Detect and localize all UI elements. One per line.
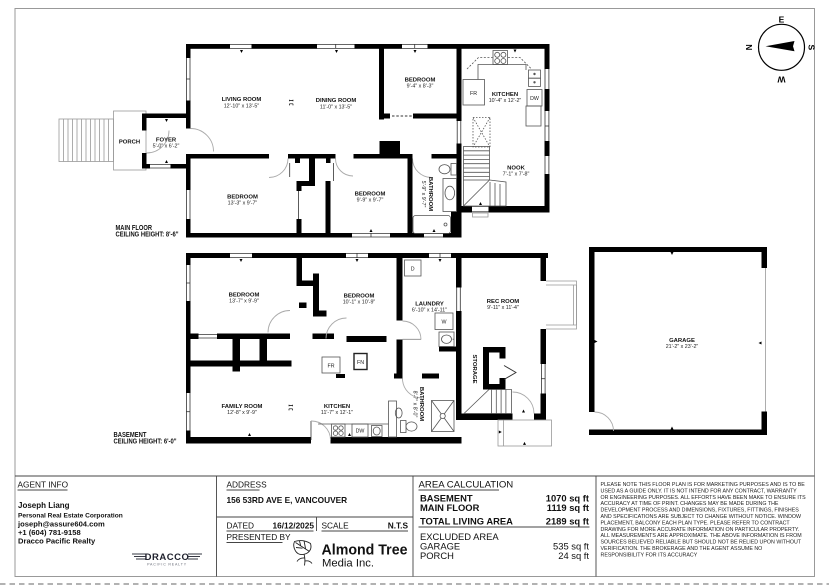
- svg-text:PLACEMENT, BALCONY EACH PLAN T: PLACEMENT, BALCONY EACH PLAN TYPE. PLEAS…: [601, 520, 791, 526]
- svg-text:12'-10" x 13'-5": 12'-10" x 13'-5": [224, 104, 260, 110]
- svg-text:9'-11" x 11'-4": 9'-11" x 11'-4": [487, 305, 519, 311]
- svg-text:LIVING ROOM: LIVING ROOM: [222, 97, 262, 103]
- svg-text:8'-7" x 8'-0": 8'-7" x 8'-0": [412, 391, 418, 418]
- svg-text:5'-0" x 6'-2": 5'-0" x 6'-2": [153, 144, 180, 150]
- svg-text:W: W: [442, 320, 447, 326]
- svg-text:W: W: [777, 75, 786, 85]
- svg-text:11'-7" x 12'-1": 11'-7" x 12'-1": [321, 410, 353, 416]
- svg-text:PORCH: PORCH: [420, 550, 454, 561]
- svg-text:AND SPECIFICATIONS ARE SUBJECT: AND SPECIFICATIONS ARE SUBJECT TO CHANGE…: [601, 514, 802, 520]
- svg-text:AGENT INFO: AGENT INFO: [18, 480, 69, 490]
- svg-text:MAIN FLOOR: MAIN FLOOR: [420, 502, 480, 513]
- svg-text:TOTAL LIVING AREA: TOTAL LIVING AREA: [420, 516, 513, 527]
- svg-text:DATED: DATED: [227, 521, 255, 531]
- svg-text:ADDRESS: ADDRESS: [227, 480, 268, 490]
- svg-text:SOURCES BELIEVED RELIABLE BUT: SOURCES BELIEVED RELIABLE BUT SHOULD NOT…: [601, 540, 802, 546]
- svg-text:13'-7" x 9'-9": 13'-7" x 9'-9": [229, 299, 259, 305]
- svg-text:9'-9" x 9'-7": 9'-9" x 9'-7": [357, 198, 384, 204]
- svg-text:DINING ROOM: DINING ROOM: [316, 98, 357, 104]
- svg-text:VERIFICATION. THE BROKERAGE AN: VERIFICATION. THE BROKERAGE AND THE AGEN…: [601, 546, 763, 552]
- svg-text:DRACCO: DRACCO: [145, 552, 190, 563]
- svg-text:2189 sq ft: 2189 sq ft: [546, 516, 589, 527]
- svg-text:Personal Real Estate Corporati: Personal Real Estate Corporation: [18, 513, 123, 520]
- svg-text:7'-1" x 7'-8": 7'-1" x 7'-8": [503, 172, 530, 178]
- svg-text:156 53RD AVE E, VANCOUVER: 156 53RD AVE E, VANCOUVER: [227, 495, 348, 505]
- svg-text:FR: FR: [327, 364, 334, 370]
- svg-text:DEVELOPMENT PROCESS AND DIMENS: DEVELOPMENT PROCESS AND DIMENSIONS, FIXT…: [601, 508, 800, 514]
- svg-text:CEILING HEIGHT: 6'-0": CEILING HEIGHT: 6'-0": [114, 439, 177, 446]
- svg-text:N.T.S: N.T.S: [388, 521, 409, 531]
- svg-text:Media Inc.: Media Inc.: [322, 558, 374, 570]
- svg-text:Dracco Pacific Realty: Dracco Pacific Realty: [18, 537, 96, 546]
- svg-text:AREA CALCULATION: AREA CALCULATION: [419, 480, 514, 491]
- svg-text:DRAWING FOR MORE ACCURATE INFO: DRAWING FOR MORE ACCURATE INFORMATION ON…: [601, 527, 800, 533]
- svg-text:OR ENGINEERING PURPOSES. ALL E: OR ENGINEERING PURPOSES. ALL EFFORTS HAV…: [601, 495, 807, 501]
- svg-text:9'-4" x 8'-3": 9'-4" x 8'-3": [407, 84, 434, 90]
- svg-text:10'-4" x 12'-2": 10'-4" x 12'-2": [489, 98, 522, 104]
- svg-text:DW: DW: [530, 96, 539, 102]
- svg-text:10'-1" x 10'-9": 10'-1" x 10'-9": [343, 300, 376, 306]
- svg-text:PLEASE NOTE THIS FLOOR PLAN IS: PLEASE NOTE THIS FLOOR PLAN IS FOR MARKE…: [601, 482, 806, 488]
- svg-text:Joseph Liang: Joseph Liang: [18, 501, 70, 510]
- svg-text:16/12/2025: 16/12/2025: [273, 521, 315, 531]
- svg-text:ALL MEASUREMENTS ARE APPROXIMA: ALL MEASUREMENTS ARE APPROXIMATE. THE AB…: [601, 533, 802, 539]
- svg-text:RESPONSIBILITY FOR ITS ACCURAC: RESPONSIBILITY FOR ITS ACCURACY: [601, 552, 698, 558]
- svg-text:11'-0" x 13'-5": 11'-0" x 13'-5": [320, 105, 352, 111]
- svg-text:STORAGE: STORAGE: [471, 354, 477, 383]
- svg-text:21'-2" x 23'-2": 21'-2" x 23'-2": [666, 344, 699, 350]
- svg-text:CEILING HEIGHT: 8'-6": CEILING HEIGHT: 8'-6": [116, 231, 179, 238]
- svg-text:SCALE: SCALE: [322, 521, 350, 531]
- svg-text:E: E: [779, 15, 785, 25]
- svg-text:DW: DW: [356, 429, 365, 435]
- svg-text:1119 sq ft: 1119 sq ft: [547, 502, 589, 513]
- svg-text:FR: FR: [470, 91, 477, 97]
- svg-text:ACCURACY AT TIME OF PRINT. CHA: ACCURACY AT TIME OF PRINT. CHANGES MAY B…: [601, 501, 779, 507]
- svg-text:S: S: [807, 44, 817, 50]
- svg-text:FN: FN: [357, 360, 364, 366]
- svg-text:PRESENTED BY: PRESENTED BY: [227, 532, 292, 542]
- svg-text:D: D: [411, 267, 415, 273]
- svg-text:13'-3" x 9'-7": 13'-3" x 9'-7": [228, 201, 258, 207]
- svg-text:BATHROOM: BATHROOM: [427, 177, 433, 211]
- svg-text:PORCH: PORCH: [119, 140, 140, 146]
- svg-text:Almond Tree: Almond Tree: [322, 542, 408, 559]
- svg-text:24 sq ft: 24 sq ft: [558, 550, 589, 561]
- svg-text:BATHROOM: BATHROOM: [418, 387, 424, 421]
- svg-text:N: N: [744, 44, 754, 50]
- svg-text:12'-8" x 9'-9": 12'-8" x 9'-9": [227, 410, 257, 416]
- svg-text:PACIFIC REALTY: PACIFIC REALTY: [147, 563, 187, 567]
- svg-text:5'-9" x 9'-7": 5'-9" x 9'-7": [420, 181, 426, 208]
- svg-text:USED AS A GUIDE ONLY. IT IS NO: USED AS A GUIDE ONLY. IT IS NOT INTEND F…: [601, 488, 798, 494]
